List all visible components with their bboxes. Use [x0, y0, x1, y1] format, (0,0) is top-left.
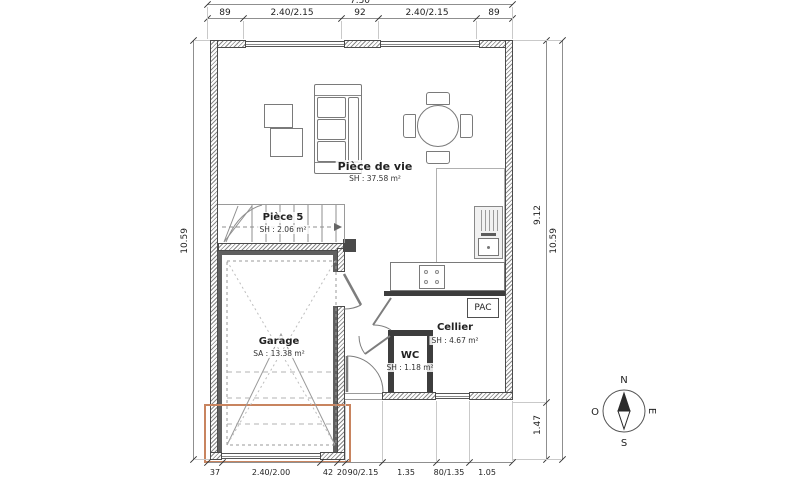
room-label-garage: Garage	[257, 336, 302, 347]
dim-bottom-5: 1.35	[397, 468, 415, 478]
compass-needle-south	[618, 411, 630, 429]
dim-right-upper: 9.12	[533, 205, 544, 225]
room-label-wc: WC	[399, 350, 421, 361]
witness-line	[513, 459, 562, 460]
witness-line	[378, 21, 379, 39]
dim-bottom-0: 37	[210, 468, 220, 478]
dim-right-total: 10.59	[549, 228, 560, 254]
dim-bottom-2: 42	[323, 468, 333, 478]
room-area-wc: SH : 1.18 m²	[384, 363, 435, 372]
wc-door-leaf	[365, 336, 390, 354]
floor-plan-canvas: PAC Pièce de vie SH : 37.5	[0, 0, 811, 480]
cellier-door-leaf	[373, 298, 391, 325]
stair-direction-arrow-icon	[334, 223, 342, 231]
wc-door-swing	[359, 336, 365, 354]
witness-line	[243, 21, 244, 39]
compass-needle-north	[618, 393, 630, 411]
witness-line	[476, 21, 477, 39]
linework-overlay	[0, 0, 811, 480]
dim-bottom-3: 20	[337, 468, 347, 478]
dim-top-1: 2.40/2.15	[270, 8, 313, 18]
witness-line	[512, 401, 513, 461]
witness-line	[382, 401, 383, 461]
room-label-living: Pièce de vie	[336, 160, 415, 173]
dim-line-left	[193, 40, 194, 460]
compass-north-label: N	[620, 375, 627, 386]
stair-treads	[252, 205, 336, 242]
room-area-room5: SH : 2.06 m²	[257, 225, 308, 234]
dim-bottom-7: 1.05	[478, 468, 496, 478]
dim-line-right-outer	[562, 40, 563, 460]
dim-bottom-6: 80/1.35	[434, 468, 465, 478]
dim-line-top-total	[207, 4, 513, 5]
witness-line	[513, 402, 546, 403]
dim-top-0: 89	[219, 8, 230, 18]
dim-line-top-segments	[207, 18, 513, 19]
dim-bottom-4: 90/2.15	[348, 468, 379, 478]
dim-top-4: 89	[488, 8, 499, 18]
dim-top-2: 92	[354, 8, 365, 18]
witness-line	[436, 401, 437, 461]
witness-line	[469, 401, 470, 461]
compass-east-label: E	[646, 408, 657, 414]
room-area-cellier: SH : 4.67 m²	[429, 336, 480, 345]
dim-bottom-1: 2.40/2.00	[252, 468, 290, 478]
dim-left-total: 10.59	[180, 228, 191, 254]
staircase	[222, 205, 342, 242]
room-label-room5: Pièce 5	[261, 212, 306, 223]
garage-door-swing	[344, 305, 361, 309]
witness-line	[207, 7, 208, 39]
dim-right-lower: 1.47	[533, 415, 544, 435]
dim-line-bottom	[207, 462, 512, 463]
entrance-door-swing	[347, 356, 383, 392]
witness-line	[341, 21, 342, 39]
witness-line	[512, 7, 513, 39]
garage-door-leaf	[344, 274, 361, 305]
garage-door-panels	[227, 372, 335, 424]
room-area-garage: SA : 13.38 m²	[251, 349, 307, 358]
cellier-door-swing	[373, 325, 391, 330]
compass-south-label: S	[621, 438, 627, 448]
dim-top-total: 7.50	[350, 0, 370, 6]
compass-icon: N S O E	[588, 370, 660, 448]
room-label-cellier: Cellier	[435, 322, 475, 333]
witness-line	[194, 40, 210, 41]
dim-top-3: 2.40/2.15	[405, 8, 448, 18]
room-area-living: SH : 37.58 m²	[347, 174, 403, 183]
dim-line-right-inner	[546, 40, 547, 460]
witness-line	[513, 40, 562, 41]
witness-line	[345, 401, 346, 461]
compass-west-label: O	[591, 407, 599, 418]
